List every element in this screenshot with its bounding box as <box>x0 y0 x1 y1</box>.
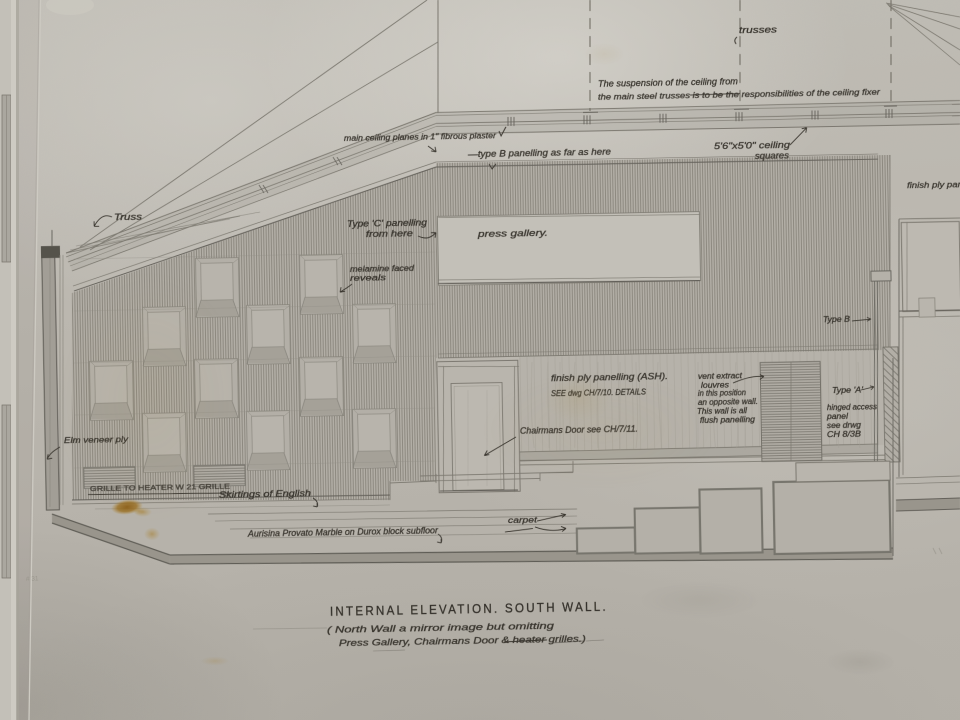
svg-text:from here: from here <box>366 228 413 239</box>
svg-text:carpet: carpet <box>508 514 538 525</box>
svg-text:press gallery.: press gallery. <box>477 228 548 239</box>
svg-text:reveals: reveals <box>350 272 387 283</box>
svg-text:vent extract: vent extract <box>698 371 743 381</box>
svg-text:trusses: trusses <box>739 24 778 35</box>
svg-text:5'6"x5'0" ceiling: 5'6"x5'0" ceiling <box>714 140 790 151</box>
svg-text:panel: panel <box>826 412 849 421</box>
svg-text:squares: squares <box>755 150 790 161</box>
svg-text:Type 'A': Type 'A' <box>832 385 864 395</box>
svg-text:Type 'C' panelling: Type 'C' panelling <box>347 218 427 229</box>
svg-text:# 31: # 31 <box>26 575 39 583</box>
svg-text:finish ply pan: finish ply pan <box>907 179 960 190</box>
svg-text:Truss: Truss <box>114 211 143 222</box>
svg-text:CH 8/3B: CH 8/3B <box>827 429 861 439</box>
svg-text:Type B: Type B <box>823 314 851 324</box>
svg-text:Skirtings of English: Skirtings of English <box>219 488 311 500</box>
svg-text:hinged access: hinged access <box>827 402 877 412</box>
